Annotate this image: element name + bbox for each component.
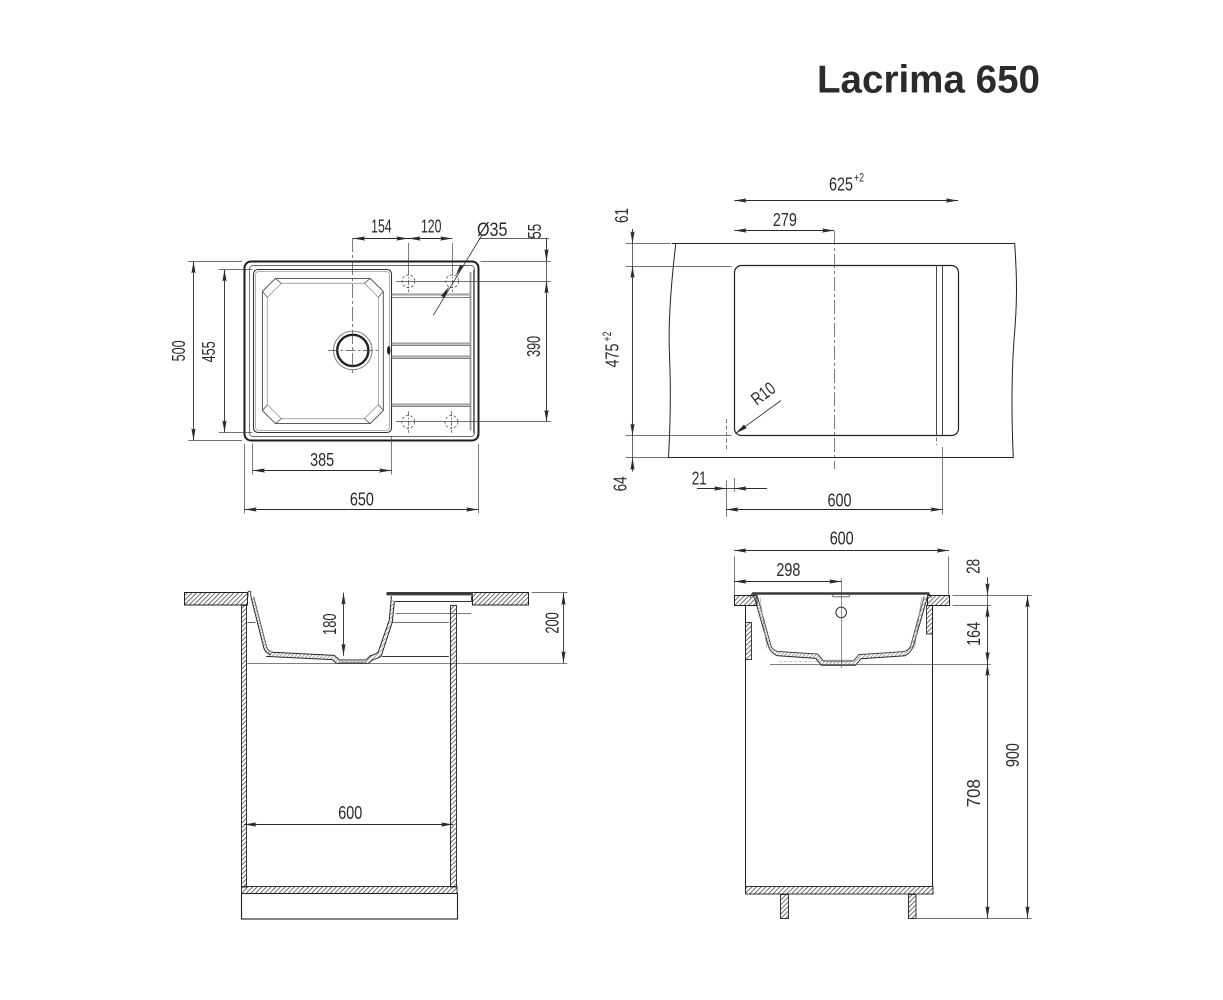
svg-text:200: 200 — [542, 612, 562, 634]
svg-text:625: 625 — [829, 175, 853, 195]
svg-text:21: 21 — [692, 468, 707, 488]
svg-text:64: 64 — [610, 476, 630, 491]
svg-text:61: 61 — [612, 208, 632, 223]
svg-text:55: 55 — [525, 224, 545, 239]
svg-text:180: 180 — [320, 613, 340, 635]
svg-text:600: 600 — [338, 803, 362, 823]
svg-text:385: 385 — [310, 450, 334, 470]
svg-text:154: 154 — [371, 217, 392, 237]
svg-text:475: 475 — [603, 344, 623, 368]
svg-text:600: 600 — [830, 528, 854, 548]
svg-text:28: 28 — [963, 559, 983, 574]
svg-text:390: 390 — [524, 336, 544, 357]
svg-text:900: 900 — [1003, 743, 1023, 767]
svg-text:298: 298 — [776, 560, 800, 580]
svg-text:Lacrima 650: Lacrima 650 — [817, 59, 1040, 102]
svg-text:+2: +2 — [602, 332, 614, 342]
svg-text:650: 650 — [350, 489, 374, 509]
svg-text:279: 279 — [773, 210, 797, 230]
svg-text:500: 500 — [169, 340, 189, 361]
svg-text:708: 708 — [964, 779, 984, 807]
svg-text:120: 120 — [421, 217, 442, 237]
svg-text:600: 600 — [828, 490, 852, 510]
svg-text:+2: +2 — [854, 173, 864, 185]
svg-text:455: 455 — [199, 341, 219, 362]
svg-text:Ø35: Ø35 — [477, 219, 508, 241]
svg-text:164: 164 — [964, 622, 984, 646]
